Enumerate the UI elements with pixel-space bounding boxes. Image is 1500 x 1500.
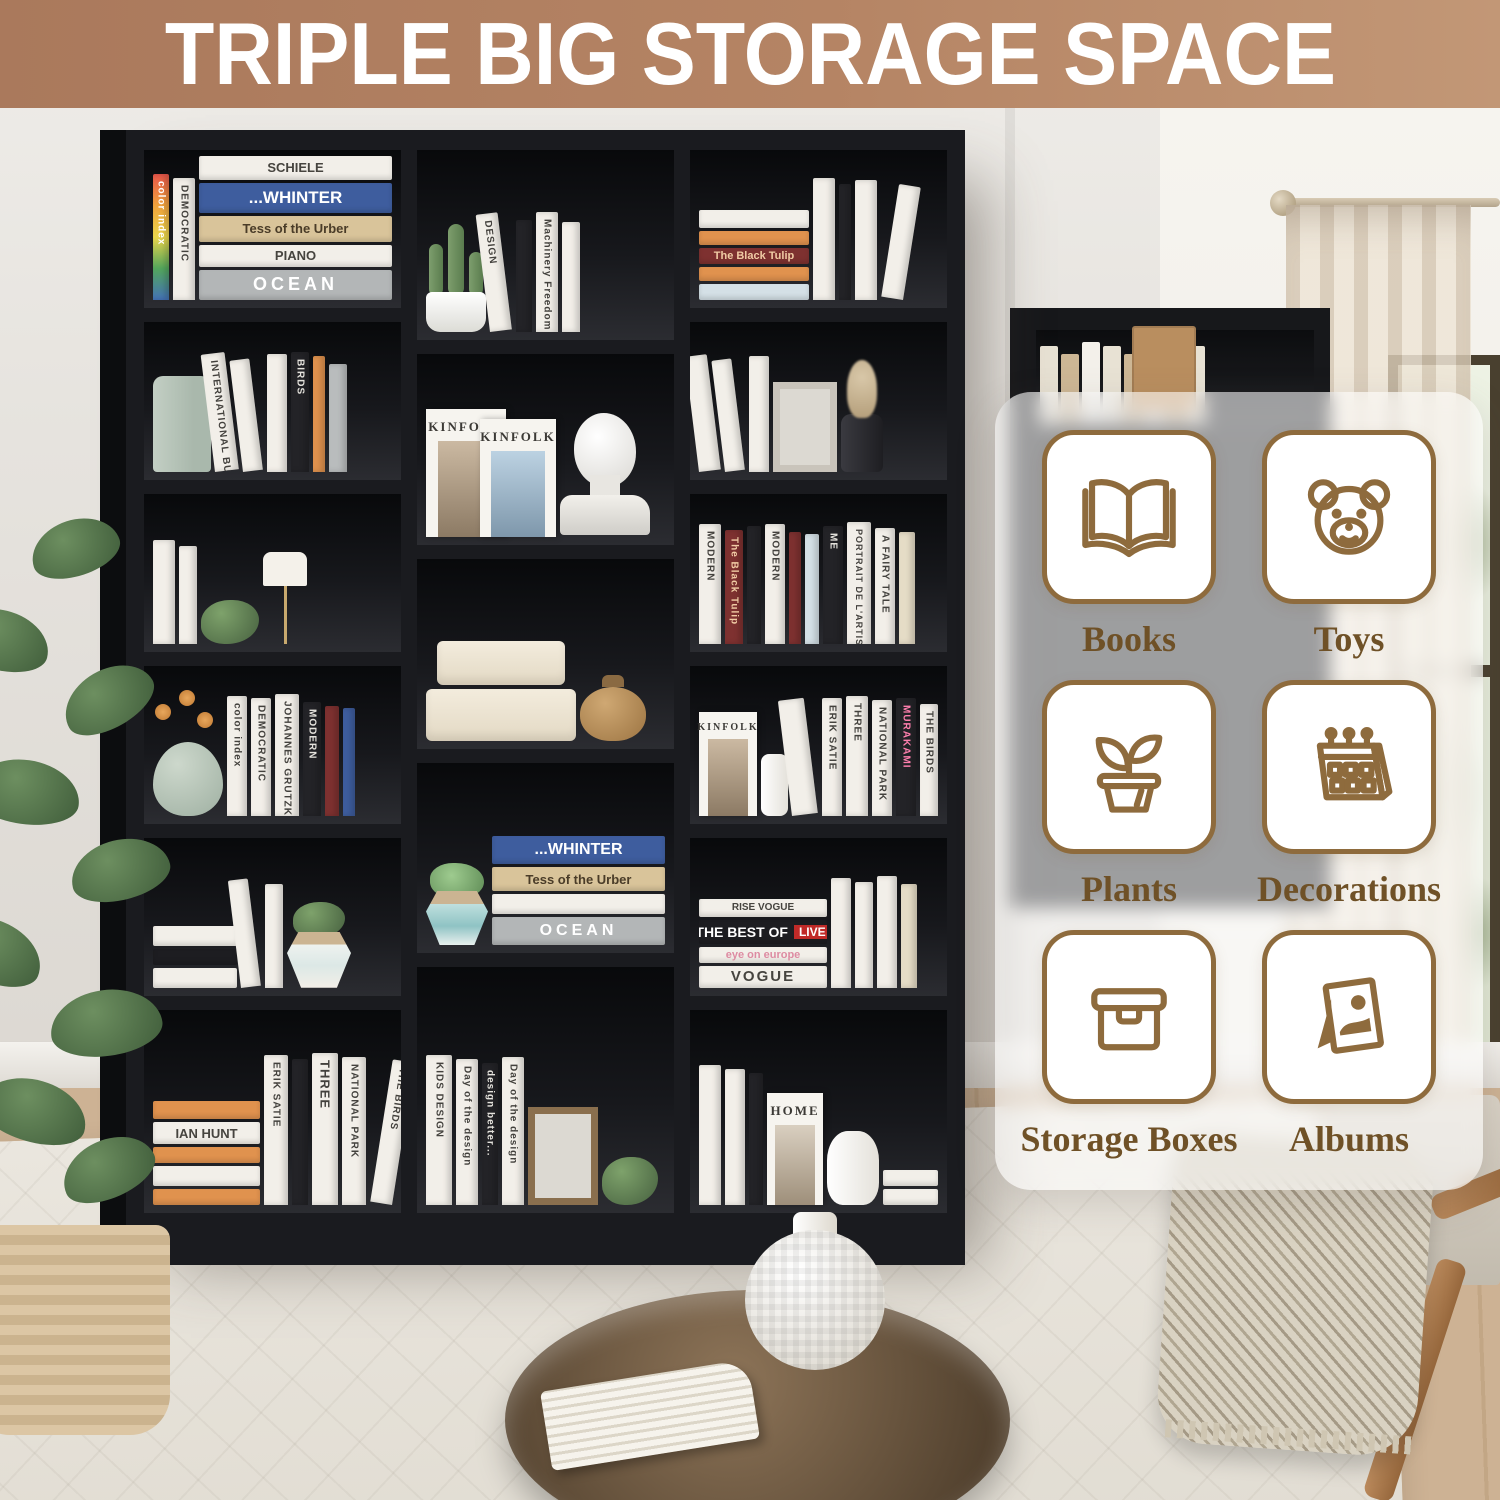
book-spine-kids-design: KIDS DESIGN	[426, 1055, 452, 1205]
book-stacked	[883, 1170, 938, 1186]
book-spine-portrait: PORTRAIT DE L'ARTISTE EN	[847, 522, 871, 644]
book-stacked	[699, 267, 809, 281]
book-stacked	[492, 894, 665, 914]
book-spine	[325, 706, 339, 816]
feature-decorations: Decorations	[1239, 680, 1459, 910]
books-tile	[1042, 430, 1216, 604]
shelf-cell	[417, 559, 674, 749]
book-spine-birds: BIRDS	[291, 352, 309, 472]
book-spine-modern: MODERN	[765, 524, 785, 644]
book-stacked-eye-on-europe: eye on europe	[699, 947, 827, 963]
book-spine-day-design: Day of the design	[456, 1059, 478, 1205]
toys-tile	[1262, 430, 1436, 604]
shelf-cell: The Black Tulip	[690, 150, 947, 308]
open-book-icon	[1073, 461, 1185, 573]
photo-frame-icon	[1293, 961, 1405, 1073]
book-stacked-schiele: SCHIELE	[199, 156, 392, 180]
book-stacked	[883, 1189, 938, 1205]
book-spine-erik-satie: ERIK SATIE	[822, 698, 842, 816]
storage-box-stack	[426, 641, 576, 741]
book-spine	[881, 184, 921, 300]
book-stacked-whinter: ...WHINTER	[492, 836, 665, 864]
bookcase-column-middle: DESIGN Machinery Freedom KINFOLK KINFOLK	[417, 150, 674, 1213]
candle	[761, 754, 788, 816]
book-stacked-vogue: VOGUE	[699, 966, 827, 988]
book-spine	[813, 178, 835, 300]
framed-art	[773, 382, 837, 472]
book-spine	[839, 184, 851, 300]
storage-box-icon	[1073, 961, 1185, 1073]
feature-toys: Toys	[1239, 430, 1459, 660]
kinfolk-magazine: KINFOLK	[480, 419, 556, 537]
feature-label: Decorations	[1257, 868, 1441, 910]
book-spine	[747, 526, 761, 644]
ceramic-vase	[153, 376, 211, 472]
feature-albums: Albums	[1239, 930, 1459, 1160]
kinfolk-magazine: KINFOLK	[699, 712, 757, 816]
book-stacked-rise-vogue: RISE VOGUE	[699, 899, 827, 917]
book-spine-modern: MODERN	[699, 524, 721, 644]
book-spine-fairy-tale: A FAIRY TALE	[875, 528, 895, 644]
book-spine	[749, 356, 769, 472]
book-spine	[899, 532, 915, 644]
david-bust-statue	[560, 413, 652, 537]
shelf-cell: ...WHINTER Tess of the Urber OCEAN	[417, 763, 674, 953]
banner-title: TRIPLE BIG STORAGE SPACE	[164, 3, 1335, 105]
feature-panel: Books Toys	[995, 392, 1483, 1190]
book-spine-democratic: DEMOCRATIC	[173, 178, 195, 300]
book-stacked-ocean: OCEAN	[199, 270, 392, 300]
cactus-planter	[426, 224, 486, 332]
shelf-cell: MODERN The Black Tulip MODERN ME PORTRAI…	[690, 494, 947, 652]
floor-plant	[0, 520, 280, 1260]
feature-label: Books	[1082, 618, 1176, 660]
book-stacked-tess: Tess of the Urber	[492, 867, 665, 891]
book-spine-modern: MODERN	[303, 702, 321, 816]
shelf-cell: DESIGN Machinery Freedom	[417, 150, 674, 340]
feature-label: Plants	[1081, 868, 1177, 910]
storage-boxes-tile	[1042, 930, 1216, 1104]
book-stacked-whinter: ...WHINTER	[199, 183, 392, 213]
bookcase-column-right: The Black Tulip	[690, 150, 947, 1213]
book-spine	[877, 876, 897, 988]
ceramic-jar	[580, 675, 646, 741]
shelf-cell: RISE VOGUE THE BEST OFLIVE eye on europe…	[690, 838, 947, 996]
book-spine-national-park: NATIONAL PARK	[872, 700, 892, 816]
book-spine	[749, 1073, 763, 1205]
book-spine-machinery: Machinery Freedom	[536, 212, 558, 332]
shelf-cell: HOME	[690, 1010, 947, 1213]
product-marketing-image: color index DEMOCRATIC SCHIELE ...WHINTE…	[0, 0, 1500, 1500]
book-spine-murakami: MURAKAMI	[896, 698, 916, 816]
albums-tile	[1262, 930, 1436, 1104]
decorations-tile	[1262, 680, 1436, 854]
book-spine	[343, 708, 355, 816]
potted-plant-icon	[1073, 711, 1185, 823]
book-spine	[699, 1065, 721, 1205]
book-stacked	[699, 284, 809, 300]
book-spine	[329, 364, 347, 472]
shelf-cell: KINFOLK ERIK SATIE THREE NATIONAL PARK M…	[690, 666, 947, 824]
book-spine	[805, 534, 819, 644]
sphere-vase	[745, 1230, 885, 1370]
book-spine-the-birds: THE BIRDS	[370, 1059, 401, 1205]
book-spine	[267, 354, 287, 472]
flip-calendar-icon	[1293, 711, 1405, 823]
feature-books: Books	[1019, 430, 1239, 660]
book-spine-day-design: Day of the design	[502, 1057, 524, 1205]
book-spine	[789, 532, 801, 644]
book-spine	[725, 1069, 745, 1205]
book-spine-three: THREE	[846, 696, 868, 816]
book-spine-three: THREE	[312, 1053, 338, 1205]
shelf-cell: KINFOLK KINFOLK	[417, 354, 674, 544]
plants-tile	[1042, 680, 1216, 854]
book-stacked-best-of-live: THE BEST OFLIVE	[699, 920, 827, 944]
feature-storage-boxes: Storage Boxes	[1019, 930, 1239, 1160]
feature-label: Storage Boxes	[1021, 1118, 1238, 1160]
book-spine	[562, 222, 580, 332]
book-spine-design-better: design better...	[482, 1063, 498, 1205]
shelf-cell	[690, 322, 947, 480]
shelf-cell: KIDS DESIGN Day of the design design bet…	[417, 967, 674, 1213]
book-spine	[855, 882, 873, 988]
book-spine-national-park: NATIONAL PARK	[342, 1057, 366, 1205]
geometric-planter	[287, 902, 351, 988]
book-stacked	[699, 210, 809, 228]
book-spine-me: ME	[823, 526, 843, 644]
book-spine	[901, 884, 917, 988]
book-spine	[313, 356, 325, 472]
picture-frame	[528, 1107, 598, 1205]
woven-plant-basket	[0, 1225, 170, 1435]
pampas-vase	[841, 414, 883, 472]
book-spine	[855, 180, 877, 300]
succulent-planter	[426, 863, 488, 945]
book-stacked-piano: PIANO	[199, 245, 392, 267]
potted-plant	[602, 1157, 658, 1205]
white-vase	[827, 1131, 879, 1205]
home-book-cover: HOME	[767, 1093, 823, 1205]
feature-plants: Plants	[1019, 680, 1239, 910]
feature-label: Toys	[1314, 618, 1385, 660]
book-stacked	[699, 231, 809, 245]
book-spine-the-birds: THE BIRDS	[920, 704, 938, 816]
book-spine-color-index: color index	[153, 174, 169, 300]
book-spine-black-tulip: The Black Tulip	[725, 530, 743, 644]
shelf-cell: color index DEMOCRATIC SCHIELE ...WHINTE…	[144, 150, 401, 308]
feature-label: Albums	[1289, 1118, 1409, 1160]
book-spine	[516, 220, 532, 332]
book-stacked-ocean: OCEAN	[492, 917, 665, 945]
book-spine	[831, 878, 851, 988]
book-stacked-tess: Tess of the Urber	[199, 216, 392, 242]
book-spine	[292, 1059, 308, 1205]
title-banner: TRIPLE BIG STORAGE SPACE	[0, 0, 1500, 108]
teddy-bear-icon	[1293, 461, 1405, 573]
book-stacked-black-tulip: The Black Tulip	[699, 248, 809, 264]
shelf-cell: INTERNATIONAL BUSINESS BIRDS	[144, 322, 401, 480]
